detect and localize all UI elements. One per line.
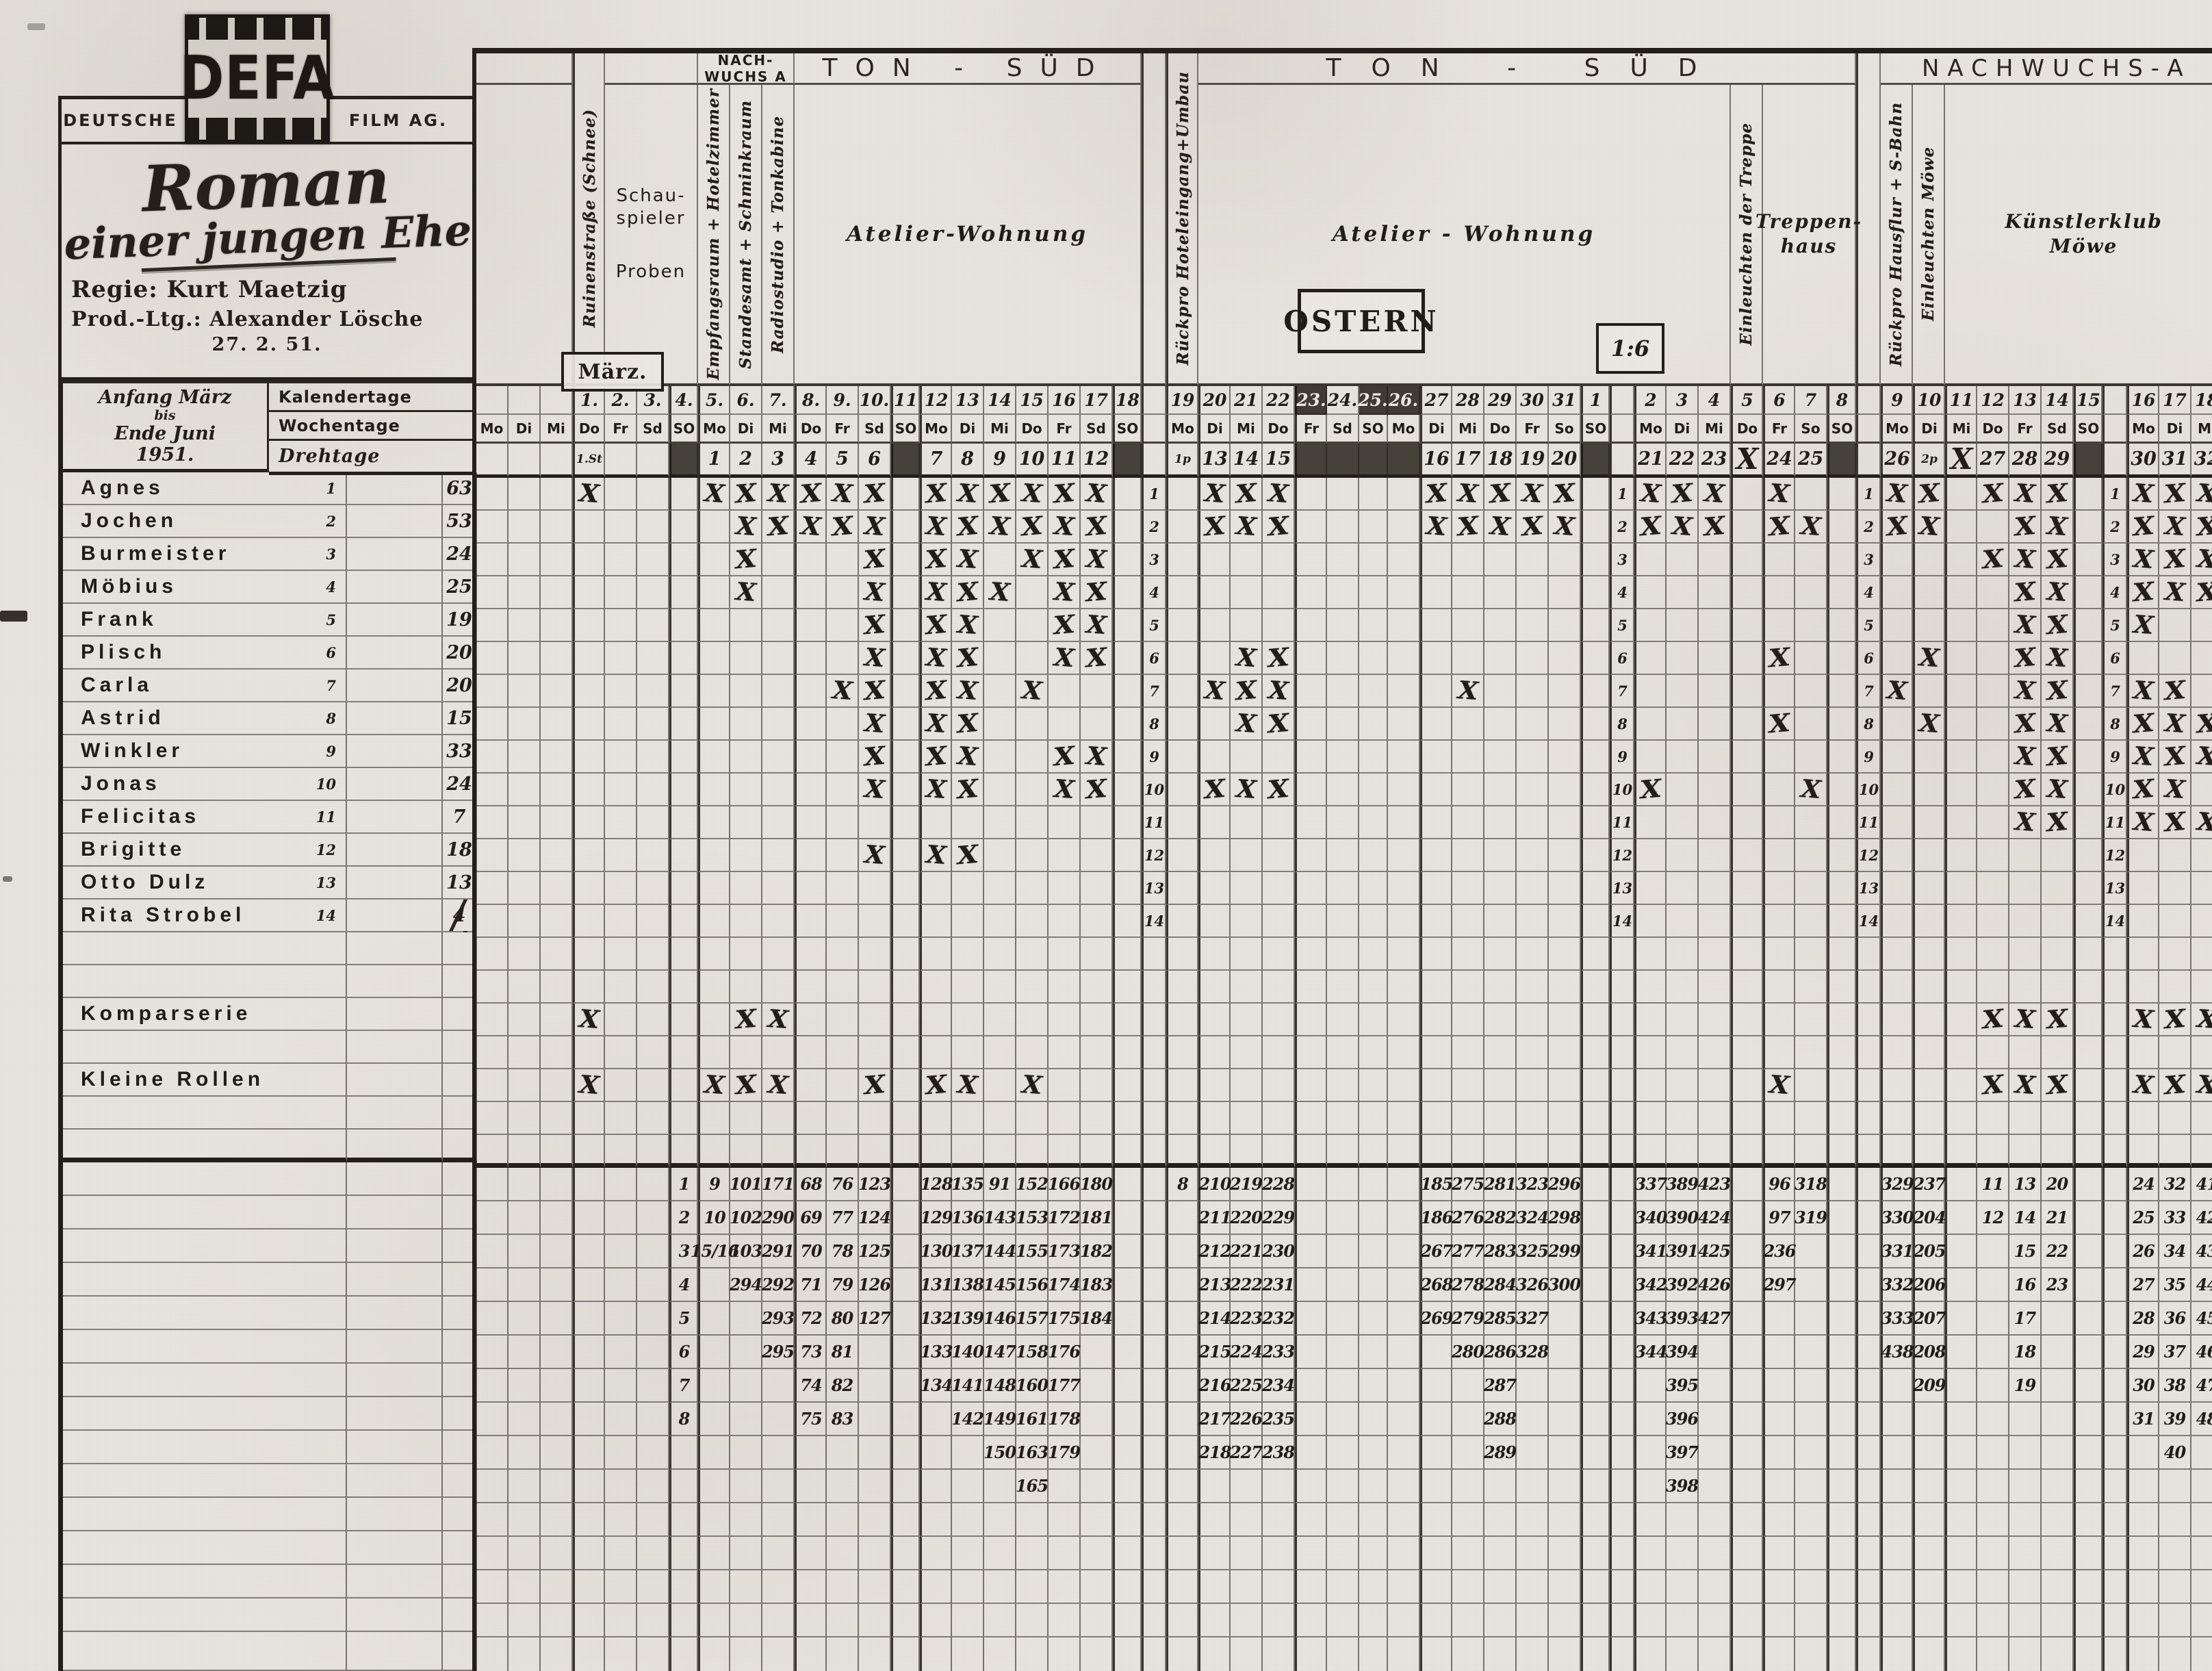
scene-number-cell — [730, 1302, 762, 1336]
scene-number-cell: 18 — [2009, 1336, 2042, 1369]
section-title — [476, 53, 573, 85]
schedule-cell — [669, 642, 698, 675]
weekday-cell: Mo — [1166, 415, 1198, 444]
schedule-cell — [509, 675, 541, 708]
schedule-cell — [730, 905, 762, 938]
spacer-cell — [347, 1531, 443, 1565]
schedule-cell — [1452, 806, 1484, 839]
schedule-cell — [1420, 774, 1452, 806]
scene-number-cell: 131 — [920, 1268, 952, 1302]
schedule-cell: X — [920, 576, 952, 609]
actor-name-cell: Komparserie — [63, 998, 347, 1031]
schedule-cell — [1388, 1036, 1420, 1069]
schedule-cell — [1699, 774, 1731, 806]
schedule-cell — [1856, 1004, 1881, 1036]
schedule-cell — [669, 971, 698, 1004]
shooting-day-x-mark: X — [925, 645, 947, 671]
schedule-cell — [1517, 1637, 1549, 1671]
schedule-cell — [1327, 1637, 1359, 1671]
shooting-day-x-mark: X — [2133, 743, 2155, 769]
scene-number-cell — [1016, 1503, 1049, 1537]
schedule-cell: X — [859, 741, 891, 774]
schedule-cell — [1795, 1069, 1827, 1102]
schedule-cell — [637, 872, 669, 905]
scene-number-cell — [762, 1369, 795, 1403]
scene-number-cell: 238 — [1263, 1436, 1295, 1470]
schedule-cell — [698, 1135, 730, 1168]
shooting-day-x-mark: X — [957, 546, 979, 572]
scene-number-cell — [1295, 1570, 1327, 1604]
schedule-cell — [1295, 1135, 1327, 1168]
schedule-cell — [1881, 576, 1913, 609]
shooting-day-cell — [476, 444, 509, 478]
scene-number-cell — [1420, 1336, 1452, 1369]
scene-number-cell — [476, 1403, 509, 1436]
day-number-cell: 3 — [1667, 386, 1699, 415]
schedule-cell — [984, 1004, 1016, 1036]
day-number-cell: 5. — [698, 386, 730, 415]
schedule-cell — [1763, 1102, 1795, 1135]
schedule-cell — [891, 609, 920, 642]
scene-number-cell: 28 — [2127, 1302, 2159, 1336]
scene-number-cell — [698, 1470, 730, 1503]
weekday-cell: Di — [1913, 415, 1945, 444]
schedule-cell — [605, 1069, 637, 1102]
shooting-day-x-mark: X — [1203, 776, 1226, 803]
schedule-cell — [1517, 609, 1549, 642]
schedule-cell — [2074, 774, 2102, 806]
schedule-cell — [1827, 1637, 1856, 1671]
actor-name: Winkler — [63, 739, 183, 763]
scene-number-cell — [541, 1268, 573, 1302]
schedule-cell: X — [920, 675, 952, 708]
empty-name-cell — [63, 1229, 347, 1263]
schedule-cell: X — [2159, 511, 2191, 544]
scene-number-cell: 42 — [2191, 1201, 2212, 1235]
spacer-cell — [347, 1565, 443, 1598]
spacer-cell — [347, 669, 443, 702]
schedule-cell — [1420, 1069, 1452, 1102]
schedule-cell: 10 — [2102, 774, 2127, 806]
shooting-day-cell — [1581, 444, 1610, 478]
schedule-cell — [698, 938, 730, 971]
scene-number-cell — [1827, 1570, 1856, 1604]
schedule-cell: X — [2127, 478, 2159, 511]
scene-number-cell — [573, 1604, 605, 1637]
schedule-cell — [795, 938, 827, 971]
scene-number-cell: 129 — [920, 1201, 952, 1235]
schedule-cell — [1295, 774, 1327, 806]
schedule-cell — [1610, 1004, 1634, 1036]
schedule-cell: X — [1667, 511, 1699, 544]
schedule-cell — [637, 511, 669, 544]
schedule-cell — [1327, 774, 1359, 806]
schedule-cell — [1166, 675, 1198, 708]
schedule-cell: X — [1634, 774, 1667, 806]
weekday-cell: Sd — [1327, 415, 1359, 444]
scene-number-cell — [1731, 1537, 1763, 1570]
schedule-cell — [1295, 642, 1327, 675]
schedule-cell — [669, 609, 698, 642]
schedule-cell — [920, 872, 952, 905]
scene-number-cell — [698, 1336, 730, 1369]
schedule-cell — [1549, 1135, 1581, 1168]
schedule-cell — [1016, 806, 1049, 839]
schedule-cell — [1827, 806, 1856, 839]
schedule-cell — [1763, 1004, 1795, 1036]
shooting-day-x-mark: X — [955, 579, 979, 606]
shooting-day-x-mark: X — [1235, 645, 1257, 671]
scene-number-cell — [669, 1470, 698, 1503]
scene-number-cell: 281 — [1484, 1168, 1517, 1201]
scene-number-cell — [891, 1537, 920, 1570]
schedule-cell — [1049, 806, 1081, 839]
scene-number-cell — [1827, 1201, 1856, 1235]
schedule-cell — [1198, 609, 1231, 642]
schedule-cell — [1081, 1102, 1113, 1135]
spacer-cell — [347, 604, 443, 637]
scene-number-cell — [1231, 1537, 1263, 1570]
scene-number-cell — [1827, 1302, 1856, 1336]
scene-number-cell: 130 — [920, 1235, 952, 1268]
schedule-cell — [1634, 1004, 1667, 1036]
schedule-cell: X — [730, 1004, 762, 1036]
actor-name-cell: Rita Strobel14 — [63, 900, 347, 932]
shooting-day-cell: 6 — [859, 444, 891, 478]
shooting-day-cell — [891, 444, 920, 478]
schedule-cell — [573, 905, 605, 938]
day-number-cell: 29 — [1484, 386, 1517, 415]
scene-number-cell — [2191, 1503, 2212, 1537]
scene-number-cell — [1166, 1537, 1198, 1570]
shooting-day-cell: 30 — [2127, 444, 2159, 478]
schedule-cell — [1166, 609, 1198, 642]
scene-number-cell: 142 — [952, 1403, 984, 1436]
day-number-cell: 12 — [1977, 386, 2009, 415]
shooting-day-x-mark: X — [1671, 513, 1693, 539]
scene-number-cell — [1881, 1403, 1913, 1436]
schedule-cell — [1581, 806, 1610, 839]
scene-number-cell — [1977, 1570, 2009, 1604]
weekday-cell — [1610, 415, 1634, 444]
shooting-day-cell — [1327, 444, 1359, 478]
schedule-cell — [1359, 576, 1388, 609]
scene-number-cell: 390 — [1667, 1201, 1699, 1235]
schedule-cell: 14 — [1610, 905, 1634, 938]
scene-number-cell — [1667, 1604, 1699, 1637]
day-number-cell: 13 — [952, 386, 984, 415]
schedule-cell — [920, 938, 952, 971]
schedule-cell — [984, 741, 1016, 774]
weekday-cell: SO — [1113, 415, 1142, 444]
schedule-cell — [1699, 971, 1731, 1004]
schedule-cell — [2009, 839, 2042, 872]
schedule-cell — [1359, 806, 1388, 839]
schedule-cell: X — [952, 478, 984, 511]
schedule-cell: X — [859, 576, 891, 609]
schedule-cell — [698, 872, 730, 905]
shooting-day-x-mark: X — [2045, 612, 2068, 639]
schedule-cell — [1881, 774, 1913, 806]
schedule-cell — [1731, 839, 1763, 872]
scene-number-cell — [476, 1470, 509, 1503]
day-number-cell: 23. — [1295, 386, 1327, 415]
scene-number-cell — [1610, 1570, 1634, 1604]
scene-number-cell — [2074, 1570, 2102, 1604]
scene-number-cell — [476, 1302, 509, 1336]
label-line: WUCHS A — [704, 68, 787, 85]
schedule-cell — [1699, 806, 1731, 839]
weekday-cell: Fr — [605, 415, 637, 444]
actor-name: Brigitte — [63, 838, 185, 861]
label-line: Proben — [616, 261, 686, 283]
schedule-cell — [1763, 839, 1795, 872]
schedule-cell — [669, 938, 698, 971]
schedule-cell — [1795, 872, 1827, 905]
schedule-cell: X — [2127, 511, 2159, 544]
shooting-day-cell: 11 — [1049, 444, 1081, 478]
period-box: Anfang März bis Ende Juni 1951. — [58, 381, 267, 472]
schedule-cell: X — [920, 544, 952, 576]
location-column: Einleuchten Möwe — [1913, 85, 1945, 386]
schedule-cell — [1517, 576, 1549, 609]
scene-number-cell: 156 — [1016, 1268, 1049, 1302]
schedule-cell — [1581, 511, 1610, 544]
scene-number-cell — [605, 1570, 637, 1604]
scene-number-cell — [637, 1503, 669, 1537]
schedule-cell — [698, 741, 730, 774]
scene-number-cell — [1388, 1369, 1420, 1403]
scene-number-cell: 183 — [1081, 1268, 1113, 1302]
day-number-cell: 24. — [1327, 386, 1359, 415]
schedule-cell — [730, 1135, 762, 1168]
location-section — [476, 85, 573, 386]
schedule-cell — [1795, 971, 1827, 1004]
schedule-cell — [1856, 1102, 1881, 1135]
schedule-cell — [1945, 708, 1977, 741]
scene-number-cell — [1581, 1268, 1610, 1302]
schedule-cell: X — [1016, 478, 1049, 511]
schedule-cell — [1881, 741, 1913, 774]
scene-number-cell — [1420, 1570, 1452, 1604]
scene-number-cell — [1856, 1336, 1881, 1369]
scene-number-cell: 342 — [1634, 1268, 1667, 1302]
scene-number-cell: 37 — [2159, 1336, 2191, 1369]
shooting-day-x-mark: X — [955, 776, 979, 803]
scene-number-cell — [1763, 1470, 1795, 1503]
actor-name: Carla — [63, 674, 153, 697]
schedule-cell — [1731, 675, 1763, 708]
schedule-cell — [1549, 1637, 1581, 1671]
scene-number-cell — [1945, 1470, 1977, 1503]
schedule-cell: X — [952, 511, 984, 544]
scene-number-cell: 205 — [1913, 1235, 1945, 1268]
scene-number-cell — [1763, 1537, 1795, 1570]
scene-number-cell — [1977, 1235, 2009, 1268]
schedule-cell: 7 — [2102, 675, 2127, 708]
scene-number-cell — [1634, 1537, 1667, 1570]
schedule-cell — [1549, 905, 1581, 938]
scene-number-cell: 389 — [1667, 1168, 1699, 1201]
schedule-cell: X — [2191, 576, 2212, 609]
company-name-left: DEUTSCHE — [62, 99, 179, 142]
weekday-cell: Mo — [1388, 415, 1420, 444]
weekday-cell: Sd — [1081, 415, 1113, 444]
scene-number-cell: 73 — [795, 1336, 827, 1369]
shooting-day-x-mark: X — [735, 579, 757, 605]
scene-number-cell — [2159, 1537, 2191, 1570]
scene-number-cell — [605, 1470, 637, 1503]
schedule-cell — [795, 1004, 827, 1036]
schedule-cell — [1166, 774, 1198, 806]
schedule-cell: 4 — [1610, 576, 1634, 609]
schedule-cell: X — [1881, 675, 1913, 708]
shooting-day-x-mark: X — [1457, 481, 1479, 507]
schedule-cell — [1913, 938, 1945, 971]
scene-number-cell — [1549, 1403, 1581, 1436]
schedule-cell — [1166, 1069, 1198, 1102]
scene-number-cell: 237 — [1913, 1168, 1945, 1201]
scene-number-cell — [2102, 1336, 2127, 1369]
spacer-cell — [347, 768, 443, 801]
scene-number-cell — [762, 1436, 795, 1470]
schedule-cell — [1484, 642, 1517, 675]
spacer-cell — [347, 867, 443, 900]
scene-number-cell: 13 — [2009, 1168, 2042, 1201]
schedule-cell: X — [1634, 478, 1667, 511]
day-number-cell: 18 — [2191, 386, 2212, 415]
schedule-cell — [2159, 1135, 2191, 1168]
schedule-cell: X — [1049, 544, 1081, 576]
schedule-cell — [1945, 511, 1977, 544]
scene-number-cell — [891, 1403, 920, 1436]
schedule-cell — [2042, 1036, 2074, 1069]
scene-number-cell — [1581, 1403, 1610, 1436]
scene-number-cell — [1142, 1503, 1166, 1537]
schedule-cell — [1388, 774, 1420, 806]
schedule-cell — [1198, 741, 1231, 774]
schedule-cell — [1667, 675, 1699, 708]
scene-number-cell — [1420, 1604, 1452, 1637]
schedule-cell: X — [2009, 774, 2042, 806]
scene-number-cell — [2042, 1470, 2074, 1503]
schedule-cell — [2009, 1036, 2042, 1069]
empty-name-cell — [63, 1464, 347, 1498]
scene-number-cell — [1166, 1570, 1198, 1604]
scene-number-cell — [1327, 1403, 1359, 1436]
day-number-cell: 15 — [1016, 386, 1049, 415]
schedule-cell — [1388, 1637, 1420, 1671]
scene-number-cell — [1945, 1403, 1977, 1436]
schedule-cell — [1581, 642, 1610, 675]
schedule-cell: 12 — [1610, 839, 1634, 872]
schedule-cell — [1549, 1004, 1581, 1036]
scene-number-cell: 158 — [1016, 1336, 1049, 1369]
schedule-cell — [1420, 839, 1452, 872]
schedule-cell — [1731, 576, 1763, 609]
schedule-cell — [1945, 1102, 1977, 1135]
weekday-cell: Di — [509, 415, 541, 444]
shooting-day-x-mark: X — [1204, 481, 1226, 507]
spacer-cell — [347, 505, 443, 538]
empty-name-cell — [63, 1130, 347, 1162]
schedule-cell — [795, 642, 827, 675]
shooting-day-x-mark: X — [2163, 1006, 2186, 1033]
schedule-cell — [1327, 971, 1359, 1004]
shooting-day-x-mark: X — [1981, 1006, 2004, 1033]
schedule-cell — [1731, 872, 1763, 905]
scene-number-cell: 15/16 — [698, 1235, 730, 1268]
schedule-cell — [891, 642, 920, 675]
scene-number-cell — [1699, 1503, 1731, 1537]
label-line: NACH- — [718, 52, 774, 68]
schedule-cell — [698, 609, 730, 642]
schedule-cell: 3 — [1610, 544, 1634, 576]
scene-number-cell — [730, 1336, 762, 1369]
schedule-cell — [573, 938, 605, 971]
schedule-cell — [1452, 938, 1484, 971]
day-number-cell: 4 — [1699, 386, 1731, 415]
shooting-day-x-mark: X — [578, 1072, 600, 1098]
ratio-box: 1:6 — [1596, 323, 1664, 374]
spacer-cell — [347, 1297, 443, 1330]
scene-number-cell — [605, 1403, 637, 1436]
schedule-cell — [1517, 971, 1549, 1004]
schedule-cell: X — [1081, 741, 1113, 774]
schedule-cell — [2127, 938, 2159, 971]
rotated-location-label: Standesamt + Schminkraum — [736, 100, 755, 369]
schedule-cell — [1881, 938, 1913, 971]
scene-number-cell — [1856, 1403, 1881, 1436]
schedule-cell — [1913, 1637, 1945, 1671]
shooting-day-x-mark: X — [2132, 776, 2155, 803]
schedule-cell — [1913, 1004, 1945, 1036]
shooting-day-x-mark: X — [2163, 1072, 2186, 1099]
spacer-cell — [347, 571, 443, 604]
day-number-cell: 13 — [2009, 386, 2042, 415]
scene-number-cell — [2191, 1537, 2212, 1570]
schedule-cell: X — [2042, 774, 2074, 806]
day-number-cell: 14 — [2042, 386, 2074, 415]
scene-number-cell — [952, 1503, 984, 1537]
shooting-day-x-mark: X — [1981, 1072, 2004, 1099]
schedule-cell: X — [2009, 511, 2042, 544]
scene-number-cell — [1142, 1470, 1166, 1503]
schedule-cell — [1359, 1004, 1388, 1036]
schedule-cell: X — [1081, 478, 1113, 511]
scene-number-cell — [795, 1537, 827, 1570]
schedule-cell — [1142, 1637, 1166, 1671]
schedule-cell — [984, 1069, 1016, 1102]
scene-number-cell: 147 — [984, 1336, 1016, 1369]
empty-name-cell — [63, 1565, 347, 1598]
schedule-cell — [1763, 741, 1795, 774]
schedule-cell: 3 — [2102, 544, 2127, 576]
scene-number-cell — [1142, 1436, 1166, 1470]
scene-number-cell — [795, 1470, 827, 1503]
schedule-cell — [1452, 1135, 1484, 1168]
schedule-cell — [2159, 1102, 2191, 1135]
spacer-cell — [347, 702, 443, 735]
schedule-cell: X — [2009, 609, 2042, 642]
schedule-cell — [1388, 839, 1420, 872]
schedule-cell — [1359, 642, 1388, 675]
schedule-cell — [1549, 938, 1581, 971]
shooting-day-cell: 25 — [1795, 444, 1827, 478]
shooting-day-x-mark: X — [1234, 481, 1257, 507]
shooting-day-cell: 8 — [952, 444, 984, 478]
actor-index: 8 — [326, 710, 336, 727]
